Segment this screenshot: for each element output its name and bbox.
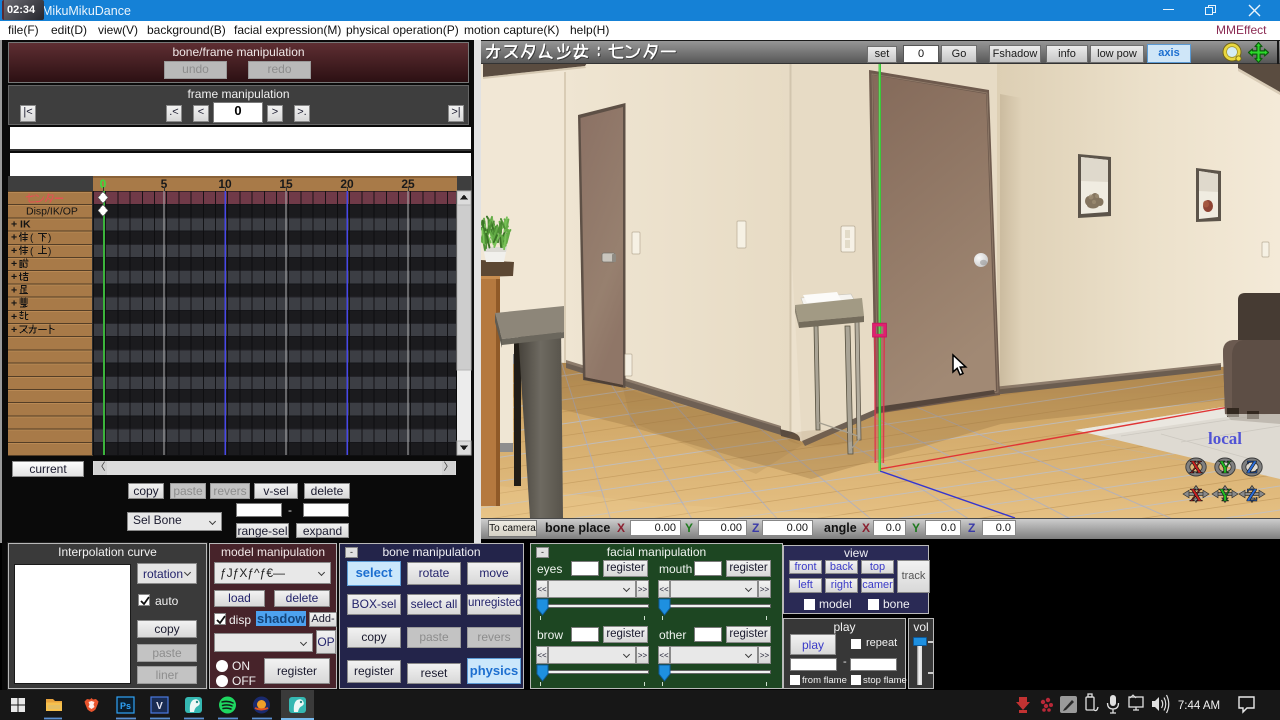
svg-text:+: +: [11, 311, 17, 323]
svg-text:+: +: [11, 232, 17, 244]
svg-text:+: +: [11, 298, 17, 310]
svg-text:Z: Z: [1246, 485, 1258, 505]
svg-text:+: +: [11, 284, 17, 296]
svg-text:+ IK: + IK: [11, 218, 31, 230]
svg-text:local: local: [1208, 429, 1242, 448]
svg-text:X: X: [1190, 457, 1203, 477]
svg-text:Y: Y: [1219, 485, 1232, 505]
svg-text:): ): [48, 233, 51, 244]
svg-text:7:44 AM: 7:44 AM: [1178, 700, 1220, 712]
svg-text:V: V: [156, 701, 163, 712]
svg-text:Z: Z: [1246, 457, 1258, 477]
svg-text:): ): [48, 246, 51, 257]
svg-text:Ps: Ps: [120, 701, 131, 711]
svg-text:+: +: [11, 271, 17, 283]
svg-text:+: +: [11, 258, 17, 270]
svg-text:Disp/IK/OP: Disp/IK/OP: [26, 206, 78, 218]
svg-text:+: +: [11, 245, 17, 257]
svg-text:X: X: [1190, 485, 1203, 505]
svg-text:Y: Y: [1219, 457, 1232, 477]
svg-text:+: +: [11, 324, 17, 336]
